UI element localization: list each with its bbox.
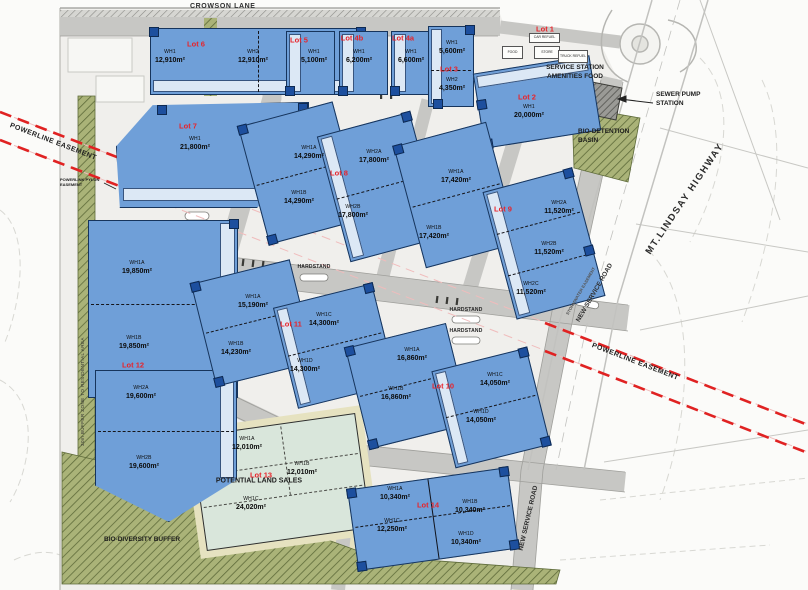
lot-label-12: Lot 12 [122,361,144,370]
lot-label-13: Lot 13 [250,471,272,480]
amenity-block [229,219,239,229]
amenity-block [401,111,413,123]
building-label: WH1A15,190m² [238,294,268,310]
building-label: WH2A17,800m² [359,149,389,165]
lot-label-9: Lot 9 [494,205,512,214]
amenity-block [344,345,356,357]
amenity-block [285,86,295,96]
building-label: WH2C11,520m² [516,281,546,297]
amenity-block [363,282,375,294]
building-label: WH1D14,300m² [290,358,320,374]
tenancy-divider [98,431,234,432]
building-label: WH1B19,850m² [119,335,149,351]
building-label: WH1C24,020m² [236,496,266,512]
building-label: WH2A19,600m² [126,385,156,401]
industrial-estate-master-plan: CAR REFUEL FOOD STORE TRUCK REFUEL [0,0,808,590]
lot-label-11: Lot 11 [280,320,302,329]
amenity-block [465,25,475,35]
building-label: WH1D10,340m² [451,531,481,547]
lot-label-3: Lot 3 [440,65,458,74]
building-label: WH1C14,300m² [309,312,339,328]
amenity-block [189,281,201,293]
building-label: WH121,800m² [180,136,210,152]
building-label: WH1A10,340m² [380,486,410,502]
service-station-building: TRUCK REFUEL [558,50,588,63]
building-label: WH1C12,250m² [377,518,407,534]
feature-label-residential-buffer: 30m BUFFER ZONE TO RESIDENTIAL AREA [80,256,85,446]
building-label: WH1B17,420m² [419,225,449,241]
lot-label-1: Lot 1 [536,25,554,34]
building-label: WH212,910m² [238,49,268,65]
building-label: WH1D14,050m² [466,409,496,425]
hardstand-label: HARDSTAND [449,307,482,313]
easement-label-powerlink-pylon: POWERLINK PYLON EASEMENT [60,177,102,187]
lot-label-4b: Lot 4b [341,34,364,43]
lot-label-8: Lot 8 [330,169,348,178]
building-label: WH1B14,290m² [284,190,314,206]
amenity-block [338,86,348,96]
service-station-caption-line1: SERVICE STATION [534,64,616,73]
office-strip [220,373,234,478]
lot-label-6: Lot 6 [187,40,205,49]
feature-label-bio-detention-basin: BIO-DETENTION BASIN [578,127,634,145]
amenity-block [157,105,167,115]
building-label: WH2A11,520m² [544,200,574,216]
building-label: WH15,100m² [301,49,327,65]
building-label: WH1B10,340m² [455,499,485,515]
service-station-caption-line2: AMENITIES FOOD [534,73,616,82]
amenity-block [583,244,595,256]
tenancy-divider [427,479,439,558]
building-label: WH2B19,600m² [129,455,159,471]
amenity-block [476,99,487,110]
service-station-building: FOOD [502,46,523,59]
amenity-block [346,487,357,498]
lot-label-14: Lot 14 [417,501,439,510]
building-label: WH1A17,420m² [441,169,471,185]
building-label: WH1A16,860m² [397,347,427,363]
building-label: WH1C14,050m² [480,372,510,388]
building-label: WH1B16,860m² [381,386,411,402]
amenity-block [517,346,529,358]
lot-label-7: Lot 7 [179,122,197,131]
building-label: WH16,200m² [346,49,372,65]
lot-label-2: Lot 2 [518,93,536,102]
amenity-block [392,143,404,155]
amenity-block [237,123,249,135]
amenity-block [433,99,443,109]
building-label: WH15,600m² [439,40,465,56]
feature-label-sewer-pump-station: SEWER PUMP STATION [656,90,702,109]
field-boundaries [604,0,808,462]
lot-label-4a: Lot 4a [392,34,414,43]
building-label: WH16,600m² [398,49,424,65]
feature-label-bio-diversity-buffer: BIO-DIVERSITY BUFFER [104,536,180,543]
building-label: WH1B14,230m² [221,341,251,357]
tenancy-divider [204,484,363,507]
lot-label-5: Lot 5 [290,36,308,45]
service-station-building: CAR REFUEL [529,33,560,43]
building-label: WH24,350m² [439,77,465,93]
building-label: WH120,000m² [514,104,544,120]
amenity-block [390,86,400,96]
amenity-block [498,466,509,477]
building-label: WH1B12,010m² [287,461,317,477]
road-label-crowson-lane: CROWSON LANE [190,3,256,10]
service-station-caption: SERVICE STATION AMENITIES FOOD [534,64,616,82]
building-label: WH1A12,010m² [232,436,262,452]
building-label: WH2B11,520m² [534,241,564,257]
amenity-block [149,27,159,37]
building-label: WH1A19,850m² [122,260,152,276]
service-station-building: STORE [534,46,560,59]
building-label: WH2B17,800m² [338,204,368,220]
hardstand-label: HARDSTAND [297,264,330,270]
lot-label-10: Lot 10 [432,382,454,391]
hardstand-label: HARDSTAND [449,328,482,334]
building-label: WH1A14,290m² [294,145,324,161]
amenity-block [562,167,574,179]
building-label: WH112,910m² [155,49,185,65]
amenity-block [356,561,367,572]
